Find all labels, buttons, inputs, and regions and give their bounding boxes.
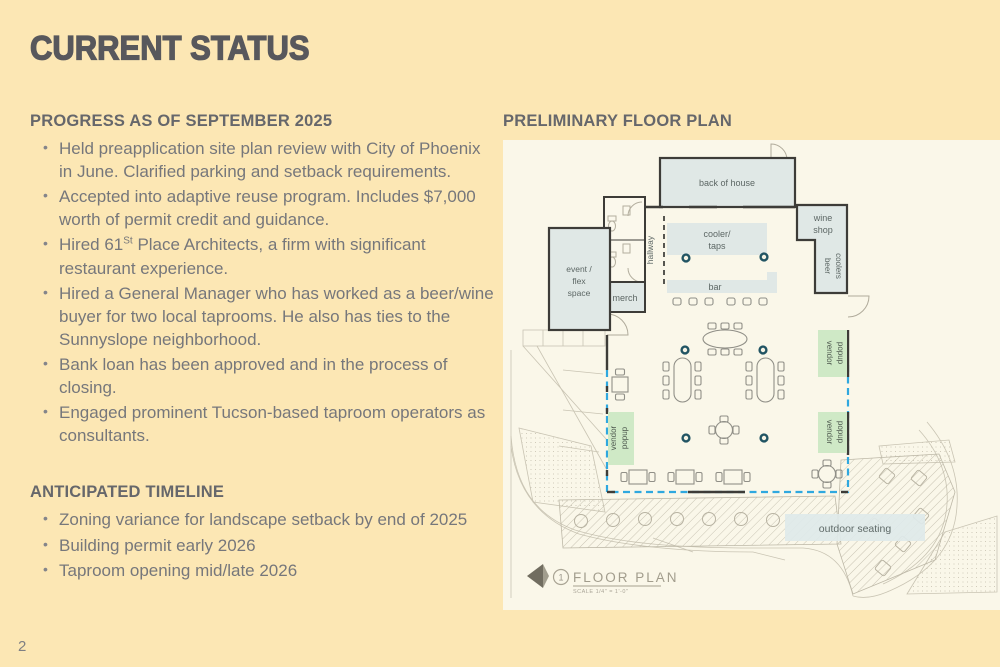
label-bar: bar bbox=[708, 282, 721, 292]
bullet-item: Hired 61St Place Architects, a firm with… bbox=[42, 233, 498, 279]
label-beer-coolers: beer bbox=[823, 258, 832, 274]
label-vendor-popup: vendor bbox=[825, 420, 834, 445]
label-outdoor-seating: outdoor seating bbox=[819, 523, 892, 535]
label-beer-coolers: coolers bbox=[834, 253, 843, 279]
bullet-item: Bank loan has been approved and in the p… bbox=[42, 353, 498, 399]
label-wine-shop: wine bbox=[813, 213, 833, 223]
floor-plan-drawing: outdoor seating back of house wine shop … bbox=[503, 140, 1000, 610]
presentation-slide: CURRENT STATUS PROGRESS AS OF SEPTEMBER … bbox=[0, 0, 1000, 667]
plan-title: FLOOR PLAN bbox=[573, 570, 679, 585]
floor-plan-heading: PRELIMINARY FLOOR PLAN bbox=[503, 112, 983, 131]
north-arrow-icon bbox=[543, 564, 549, 588]
bar-stools bbox=[673, 298, 767, 305]
bullet-item: Hired a General Manager who has worked a… bbox=[42, 282, 498, 351]
label-cooler-taps: taps bbox=[708, 241, 726, 251]
bullet-item: Taproom opening mid/late 2026 bbox=[42, 559, 498, 582]
label-merch: merch bbox=[612, 293, 637, 303]
label-vendor-popup: vendor bbox=[609, 425, 618, 450]
progress-heading: PROGRESS AS OF SEPTEMBER 2025 bbox=[30, 112, 498, 131]
floor-plan-image: outdoor seating back of house wine shop … bbox=[503, 140, 1000, 610]
right-column-heading: PRELIMINARY FLOOR PLAN bbox=[503, 112, 983, 137]
bullet-text: Hired 61 bbox=[59, 235, 123, 254]
label-event-flex: event / bbox=[566, 264, 592, 274]
bar-counter bbox=[667, 272, 777, 293]
timeline-heading: ANTICIPATED TIMELINE bbox=[30, 483, 498, 502]
north-arrow-icon bbox=[527, 564, 543, 588]
bullet-item: Engaged prominent Tucson-based taproom o… bbox=[42, 401, 498, 447]
label-event-flex: flex bbox=[572, 276, 586, 286]
ordinal-suffix: St bbox=[123, 236, 132, 247]
page-title: CURRENT STATUS bbox=[30, 28, 310, 68]
plan-title-block: 1 FLOOR PLAN SCALE 1/4" = 1'-0" bbox=[527, 564, 679, 595]
furniture bbox=[612, 323, 842, 488]
bullet-item: Held preapplication site plan review wit… bbox=[42, 137, 498, 183]
label-vendor-popup: popup bbox=[836, 342, 845, 365]
bullet-item: Building permit early 2026 bbox=[42, 534, 498, 557]
label-vendor-popup: popup bbox=[620, 426, 629, 449]
page-number: 2 bbox=[18, 638, 26, 655]
label-vendor-popup: popup bbox=[836, 421, 845, 444]
label-wine-shop: shop bbox=[813, 225, 833, 235]
timeline-list: Zoning variance for landscape setback by… bbox=[30, 508, 498, 581]
plan-scale: SCALE 1/4" = 1'-0" bbox=[573, 589, 628, 595]
left-column: PROGRESS AS OF SEPTEMBER 2025 Held preap… bbox=[30, 112, 498, 584]
label-back-of-house: back of house bbox=[699, 178, 755, 188]
timeline-section: ANTICIPATED TIMELINE Zoning variance for… bbox=[30, 483, 498, 581]
progress-list: Held preapplication site plan review wit… bbox=[30, 137, 498, 447]
bullet-item: Accepted into adaptive reuse program. In… bbox=[42, 185, 498, 231]
bullet-item: Zoning variance for landscape setback by… bbox=[42, 508, 498, 531]
label-hallway: hallway bbox=[645, 235, 655, 264]
label-vendor-popup: vendor bbox=[825, 341, 834, 366]
label-cooler-taps: cooler/ bbox=[703, 229, 731, 239]
plan-sheet-number: 1 bbox=[558, 573, 563, 583]
vendor-popups: vendor popup vendor popup vendor popup bbox=[608, 330, 847, 465]
label-event-flex: space bbox=[568, 288, 591, 298]
